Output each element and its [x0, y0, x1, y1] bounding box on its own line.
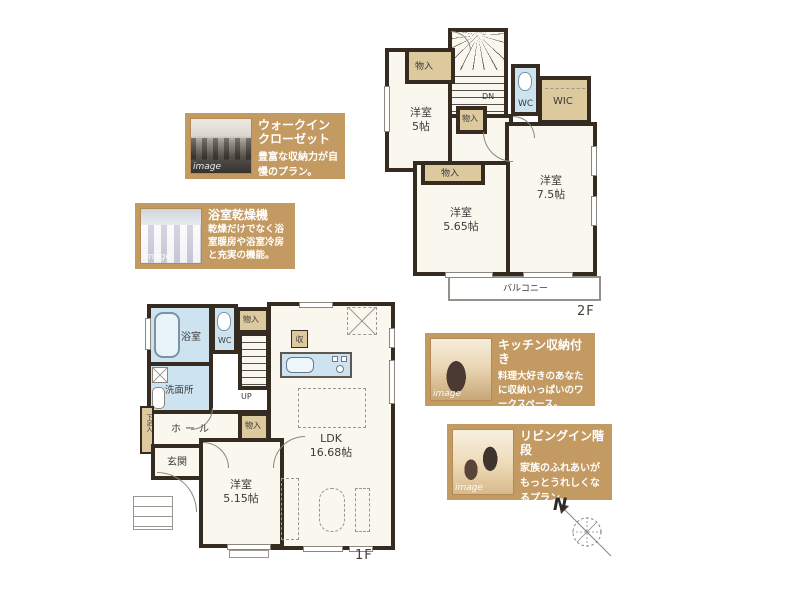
door-arc [513, 116, 535, 138]
annotation-title: ウォークイン クローゼット [258, 118, 340, 147]
compass: N [545, 492, 623, 566]
annotation-card-kitchen-storage: image キッチン収納付き 料理大好きのあなたに収納いっぱいのワークスペース。 [425, 333, 595, 406]
annotation-card-living-stairs: image リビングイン階段 家族のふれあいがもっとうれしくなるプラン。 [447, 424, 612, 500]
bathroom-label: 浴室 [181, 328, 201, 343]
room-label-yoshitsu5: 洋室 5帖 [393, 106, 449, 135]
stove-icon [341, 356, 347, 362]
cabinet-outline [355, 488, 370, 532]
room-label-yoshitsu75: 洋室 7.5帖 [521, 174, 581, 203]
family-photo: image [452, 429, 514, 495]
annotation-title: キッチン収納付き [498, 338, 590, 367]
annotation-card-walkin-closet: image ウォークイン クローゼット 豊富な収納力が自慢のプラン。 [185, 113, 345, 179]
room-label-yoshitsu515: 洋室 5.15帖 [211, 478, 271, 507]
bathroom-dryer-photo: image [140, 208, 202, 264]
bathtub-icon [154, 312, 180, 358]
washing-machine-icon [152, 367, 168, 383]
closet-label: 物入 [441, 166, 459, 179]
storage-chip: 収 [291, 330, 308, 348]
window [591, 146, 597, 176]
image-watermark: image [143, 252, 171, 262]
image-watermark: image [455, 483, 483, 493]
room-label-ldk: LDK 16.68帖 [299, 432, 363, 461]
shoe-cabinet-label: 下足入 [144, 414, 153, 432]
window [523, 272, 573, 278]
window [591, 196, 597, 226]
washroom-label: 洗面所 [165, 382, 194, 396]
stove-icon [336, 365, 344, 373]
north-label: N [553, 495, 567, 515]
plan-1f: 収 浴室 WC 物入 洗面所 UP ホール 下足入 玄関 物入 洋室 5.15 [133, 300, 399, 566]
image-watermark: image [433, 389, 461, 399]
plan-2f: 洋室 5帖 物入 物入 物入 DN WC WIC 洋室 7.5帖 洋室 5.65… [385, 28, 637, 323]
stove-icon [332, 356, 338, 362]
image-watermark: image [193, 162, 221, 172]
closet-label: 物入 [243, 314, 259, 325]
sink-icon [286, 357, 314, 373]
room-label-yoshitsu565: 洋室 5.65帖 [431, 206, 491, 235]
wc-label: WC [518, 99, 533, 109]
annotation-body: 豊富な収納力が自慢のプラン。 [258, 150, 340, 180]
floor-label-2f: 2F [577, 304, 595, 319]
annotation-card-bathroom-dryer: image 浴室乾燥機 乾燥だけでなく浴室暖房や浴室冷房と充実の機能。 [135, 203, 295, 269]
walkin-closet-photo: image [190, 118, 252, 174]
hall-label: ホール [171, 420, 213, 435]
closet-label: 物入 [462, 113, 478, 124]
window [299, 302, 333, 308]
floor-label-1f: 1F [355, 548, 373, 563]
refrigerator-space [347, 307, 377, 335]
kitchen-storage-photo: image [430, 338, 492, 401]
window [145, 318, 151, 350]
stairs-up-label: UP [241, 392, 252, 401]
stairs-dn-label: DN [482, 92, 494, 101]
toilet-icon [217, 312, 231, 331]
door-gap [389, 328, 395, 348]
annotation-title: リビングイン階段 [520, 429, 607, 458]
wic-label: WIC [553, 96, 573, 107]
window [384, 86, 390, 132]
toilet-icon [518, 72, 532, 91]
hanger-pipe-line [545, 88, 585, 89]
balcony-label: バルコニー [503, 281, 548, 294]
annotation-body: 乾燥だけでなく浴室暖房や浴室冷房と充実の機能。 [208, 224, 290, 262]
floor-plan-flyer: 洋室 5帖 物入 物入 物入 DN WC WIC 洋室 7.5帖 洋室 5.65… [0, 0, 800, 600]
window [445, 272, 493, 278]
stairs-1f [238, 332, 270, 390]
wc-label: WC [218, 336, 232, 345]
step [229, 550, 269, 558]
closet-label: 物入 [415, 59, 433, 72]
entrance-label: 玄関 [167, 453, 187, 468]
sofa-outline [281, 478, 299, 540]
annotation-body: 料理大好きのあなたに収納いっぱいのワークスペース。 [498, 370, 590, 413]
dining-table-outline [298, 388, 366, 428]
window [389, 360, 395, 404]
table-outline [319, 488, 345, 532]
closet-label: 物入 [245, 420, 261, 431]
annotation-title: 浴室乾燥機 [208, 208, 290, 222]
window [303, 546, 343, 552]
